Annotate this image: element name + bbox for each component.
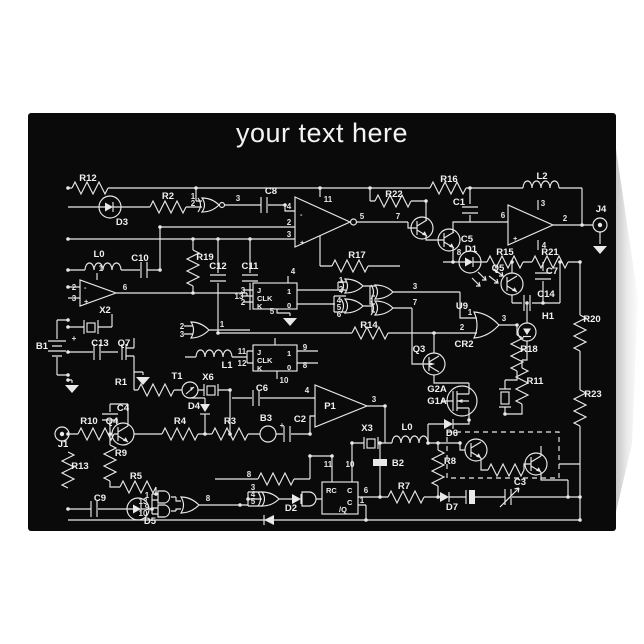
schematic-text: 2 [563, 214, 568, 223]
schematic-text: R14 [360, 320, 378, 331]
schematic-text: 8 [206, 494, 211, 503]
schematic-text: C10 [131, 253, 148, 264]
schematic-text: D6 [446, 428, 458, 439]
schematic-text: C [347, 498, 353, 507]
schematic-text: L0 [93, 249, 104, 260]
schematic-text: + [300, 238, 305, 247]
schematic-text: B2 [392, 458, 404, 469]
schematic-text: C7 [546, 266, 558, 277]
schematic-text: X6 [202, 372, 214, 383]
junction-dot [383, 404, 387, 408]
schematic-text: R3 [224, 416, 236, 427]
schematic-text: 1 [287, 287, 291, 296]
schematic-text: 3 [372, 395, 377, 404]
junction-dot [426, 441, 430, 445]
junction-dot [378, 441, 382, 445]
schematic-text: C1 [453, 197, 466, 208]
schematic-text: R9 [115, 448, 127, 459]
junction-dot [436, 495, 440, 499]
junction-dot [228, 432, 232, 436]
schematic-text: H1 [542, 311, 555, 322]
schematic-text: D1 [465, 244, 478, 255]
junction-dot [66, 186, 70, 190]
schematic-text: 5 [270, 307, 275, 316]
schematic-text: 8 [247, 470, 252, 479]
schematic-text: J4 [596, 204, 607, 215]
junction-dot [66, 285, 70, 289]
schematic-text: C12 [209, 261, 226, 272]
junction-dot [66, 268, 70, 272]
card-title-text: your text here [28, 118, 616, 149]
schematic-text: C [347, 486, 353, 495]
schematic-text: 10 [139, 509, 148, 518]
schematic-text: Q7 [118, 338, 131, 349]
junction-dot [66, 507, 70, 511]
schematic-text: T1 [171, 371, 183, 382]
schematic-text: X2 [99, 305, 111, 316]
schematic-text: D2 [285, 503, 297, 514]
junction-dot [458, 441, 462, 445]
schematic-text: C6 [256, 383, 268, 394]
schematic-text: 4 [305, 386, 310, 395]
junction-dot [66, 325, 70, 329]
junction-dot [66, 378, 70, 382]
schematic-text: 0 [287, 363, 291, 372]
schematic-text: 2 [460, 323, 465, 332]
junction-dot [158, 225, 162, 229]
junction-dot [66, 237, 70, 241]
junction-dot [350, 441, 354, 445]
schematic-text: 7 [413, 298, 418, 307]
schematic-text: R5 [130, 471, 143, 482]
schematic-text: 3 [502, 314, 507, 323]
schematic-text: 3 [413, 282, 418, 291]
schematic-text: RC [326, 486, 337, 495]
junction-dot [503, 412, 507, 416]
junction-dot [66, 318, 70, 322]
junction-dot [158, 268, 162, 272]
card-back-edge [616, 149, 638, 512]
schematic-text: D3 [116, 217, 128, 228]
junction-dot [330, 454, 334, 458]
junction-dot [566, 495, 570, 499]
schematic-text: R23 [584, 389, 601, 400]
schematic-text: R20 [583, 314, 600, 325]
schematic-text: R2 [162, 191, 174, 202]
junction-dot [378, 495, 382, 499]
schematic-text: 4 [291, 267, 296, 276]
schematic-text: 3 [180, 330, 185, 339]
schematic-text: 4 [287, 202, 292, 211]
schematic-text: 6 [123, 283, 128, 292]
schematic-text: R15 [496, 247, 514, 258]
schematic-text: B3 [260, 413, 272, 424]
schematic-text: CR2 [454, 339, 473, 350]
schematic-text: 6 [364, 486, 369, 495]
schematic-text: J1 [58, 439, 69, 450]
schematic-text: R4 [174, 416, 187, 427]
schematic-text: R13 [71, 461, 88, 472]
schematic-text: Q4 [106, 416, 119, 427]
schematic-text: R1 [115, 377, 128, 388]
schematic-text: 1 [99, 264, 104, 273]
schematic-text: 9 [303, 343, 308, 352]
schematic-text: C13 [91, 338, 108, 349]
schematic-text: P1 [324, 401, 336, 412]
junction-dot [432, 331, 436, 335]
schematic-text: C14 [537, 289, 555, 300]
schematic-text: R16 [440, 174, 457, 185]
schematic-text: 3 [541, 199, 546, 208]
schematic-text: R12 [79, 173, 96, 184]
schematic-text: Q3 [413, 344, 426, 355]
junction-dot [66, 373, 70, 377]
schematic-text: B1 [36, 341, 49, 352]
schematic-text: 2 [72, 283, 77, 292]
schematic-text: 12 [238, 359, 247, 368]
schematic-text: R18 [520, 344, 537, 355]
schematic-text: 6 [501, 211, 506, 220]
schematic-text: G1A [427, 396, 447, 407]
schematic-text: L2 [536, 171, 547, 182]
schematic-text: 5 [251, 497, 256, 506]
junction-dot [66, 350, 70, 354]
schematic-text: 8 [457, 248, 462, 257]
schematic-text: 3 [287, 230, 292, 239]
schematic-text: /Q [339, 505, 347, 514]
schematic-text: 1 [339, 276, 344, 285]
schematic-text: 6 [337, 310, 342, 319]
junction-dot [578, 260, 582, 264]
schematic-text: K [257, 364, 263, 373]
schematic-text: R10 [80, 416, 97, 427]
junction-dot [194, 186, 198, 190]
schematic-text: 11 [324, 195, 333, 204]
junction-dot [467, 418, 471, 422]
schematic-text: 7 [396, 212, 401, 221]
junction-dot [108, 432, 112, 436]
schematic-text: R22 [385, 189, 402, 200]
junction-dot [154, 492, 158, 496]
card-artwork: R12D3R2C8R22R16L2C1J4C5D1R15R21Q5C7C14L0… [0, 0, 644, 644]
schematic-text: 0 [287, 301, 291, 310]
schematic-text: R11 [527, 376, 545, 387]
schematic-text: + [84, 297, 89, 306]
schematic-text: 2 [339, 285, 344, 294]
junction-dot [203, 432, 207, 436]
schematic-text: L1 [221, 360, 233, 371]
junction-dot [541, 301, 545, 305]
schematic-text: 5 [360, 212, 365, 221]
junction-dot [510, 260, 514, 264]
schematic-text: R17 [348, 250, 365, 261]
junction-dot [578, 518, 582, 522]
junction-dot [308, 432, 312, 436]
junction-dot [468, 186, 472, 190]
schematic-text: U9 [456, 301, 468, 312]
schematic-text: G2A [427, 384, 447, 395]
junction-dot [150, 507, 154, 511]
schematic-text: 8 [303, 361, 308, 370]
junction-dot [318, 186, 322, 190]
schematic-text: C11 [242, 261, 260, 272]
junction-dot [228, 388, 232, 392]
schematic-text: 10 [346, 460, 355, 469]
junction-dot [580, 223, 584, 227]
schematic-text: 2 [241, 298, 246, 307]
greeting-card-preview: R12D3R2C8R22R16L2C1J4C5D1R15R21Q5C7C14L0… [0, 0, 644, 644]
schematic-text: R8 [444, 456, 456, 467]
junction-dot [525, 301, 529, 305]
schematic-text: 2 [287, 218, 292, 227]
junction-dot [368, 186, 372, 190]
junction-dot [436, 441, 440, 445]
schematic-text: 1 [220, 320, 225, 329]
junction-dot [248, 237, 252, 241]
schematic-text: 3 [236, 194, 241, 203]
junction-dot [558, 260, 562, 264]
schematic-text: + [280, 421, 285, 430]
schematic-text: C9 [94, 493, 106, 504]
schematic-text: 1 [468, 308, 473, 317]
schematic-text: R7 [398, 481, 410, 492]
greeting-card-product-image: { "page": { "background_color": "#ffffff… [0, 0, 644, 644]
junction-dot [578, 495, 582, 499]
junction-dot [424, 199, 428, 203]
schematic-text: C8 [265, 186, 277, 197]
schematic-text: D4 [188, 401, 201, 412]
schematic-text: 1 [287, 349, 291, 358]
junction-dot [246, 497, 250, 501]
schematic-text: 3 [72, 294, 77, 303]
junction-dot [238, 503, 242, 507]
junction-dot [451, 260, 455, 264]
schematic-text: X3 [361, 423, 373, 434]
card-front [28, 113, 616, 531]
schematic-text: 4 [542, 241, 547, 250]
schematic-text: 11 [324, 460, 333, 469]
schematic-text: + [513, 234, 518, 243]
junction-dot [66, 432, 70, 436]
junction-dot [191, 291, 195, 295]
schematic-text: 1 [360, 496, 365, 505]
junction-dot [364, 518, 368, 522]
schematic-text: 10 [280, 376, 289, 385]
junction-dot [191, 237, 195, 241]
schematic-text: L0 [401, 422, 412, 433]
schematic-text: C4 [117, 403, 130, 414]
schematic-text: 2 [191, 199, 196, 208]
schematic-text: 11 [238, 347, 247, 356]
schematic-text: C2 [294, 414, 306, 425]
schematic-text: C3 [514, 477, 526, 488]
junction-dot [515, 323, 519, 327]
junction-dot [216, 237, 220, 241]
schematic-text: Q5 [492, 263, 505, 274]
junction-dot [283, 203, 287, 207]
junction-dot [308, 454, 312, 458]
schematic-text: K [257, 302, 263, 311]
schematic-text: + [72, 334, 77, 343]
schematic-text: D7 [446, 502, 458, 513]
junction-dot [216, 331, 220, 335]
